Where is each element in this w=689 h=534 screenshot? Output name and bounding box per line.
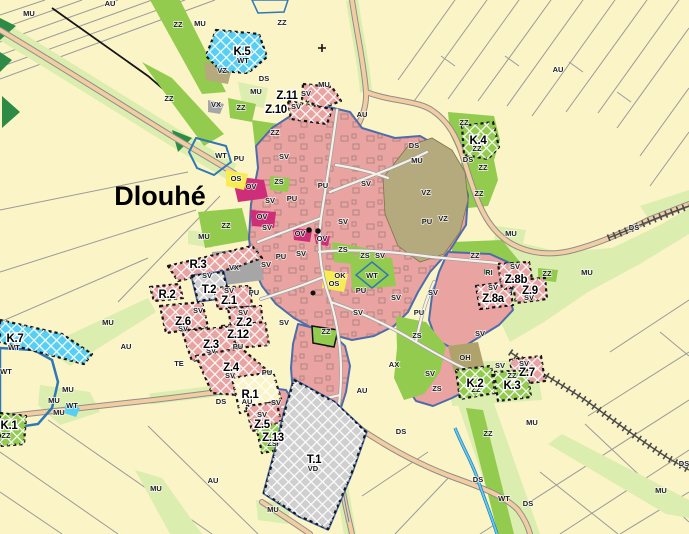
area-code-PU: PU [287,194,297,203]
area-code-PU: PU [233,342,243,351]
area-code-OV: OV [295,229,306,238]
area-code-OH: OH [459,353,470,362]
area-code-ZZ: ZZ [459,118,469,127]
zone-label-K.3: K.3 [504,380,521,392]
area-code-ZZ: ZZ [321,327,331,336]
church-dot-icon [316,229,321,234]
area-code-AU: AU [357,110,368,119]
area-code-TE: TE [174,359,184,368]
area-code-SV: SV [301,89,311,98]
church-dot-icon [307,228,312,233]
area-code-MU: MU [53,408,65,417]
area-code-SV: SV [353,308,363,317]
area-code-DS: DS [473,475,483,484]
zoning-map-viewport[interactable]: Dlouhé AUAUAUAUAUAUAUAXMUMUMUMUMUMUMUMUM… [0,0,689,534]
area-code-SV: SV [202,271,212,280]
area-code-AU: AU [553,65,564,74]
area-code-ZS: ZS [432,384,442,393]
area-code-DS: DS [629,223,639,232]
area-code-ZZ: ZZ [173,20,183,29]
area-code-MU: MU [581,268,593,277]
zone-label-Z.6: Z.6 [175,316,191,328]
area-code-SV: SV [425,369,435,378]
area-code-AU: AU [208,476,219,485]
area-code-SV: SV [428,288,438,297]
area-code-MU: MU [267,505,279,514]
area-code-SV: SV [279,152,289,161]
area-code-SV: SV [262,223,272,232]
area-code-ZS: ZS [338,245,348,254]
zone-label-Z.12: Z.12 [227,329,249,341]
area-code-WT: WT [66,401,78,410]
area-code-OS: OS [329,279,340,288]
area-code-MU: MU [194,19,206,28]
area-code-OK: OK [334,271,346,280]
area-code-PU: PU [249,288,259,297]
area-code-ZZ: ZZ [221,221,231,230]
zone-label-Z.2: Z.2 [236,317,252,329]
area-code-SV: SV [265,196,275,205]
area-code-AU: AU [105,0,116,8]
zone-label-K.5: K.5 [234,46,252,58]
area-code-VZ: VZ [217,66,227,75]
area-code-PU: PU [422,217,432,226]
area-code-SV: SV [261,260,271,269]
zone-label-K.7: K.7 [7,333,24,345]
area-code-ZZ: ZZ [470,251,480,260]
zone-label-Z.1: Z.1 [221,295,238,307]
chapel-dot-icon [311,291,315,295]
area-code-DS: DS [679,459,689,468]
area-code-AU: AU [121,342,132,351]
area-code-PU: PU [276,252,286,261]
area-code-ZZ: ZZ [236,103,246,112]
zone-label-R.1: R.1 [242,389,260,401]
area-code-MU: MU [198,232,210,241]
area-code-MU: MU [526,418,538,427]
zoning-map: Dlouhé AUAUAUAUAUAUAUAXMUMUMUMUMUMUMUMUM… [0,0,689,534]
area-code-WT: WT [215,151,227,160]
zone-label-Z.13: Z.13 [262,432,284,444]
zone-label-T.2: T.2 [202,284,216,296]
area-code-SV: SV [257,410,267,419]
zone-label-Z.5: Z.5 [254,419,271,431]
area-code-DS: DS [523,499,533,508]
area-code-SV: SV [271,398,281,407]
area-code-SV: SV [361,179,371,188]
area-code-MU: MU [102,318,114,327]
area-code-ZZ: ZZ [1,431,11,440]
area-code-VZ: VZ [421,188,431,197]
area-code-MU: MU [505,229,517,238]
zone-label-Z.7: Z.7 [519,367,535,379]
area-code-MU: MU [150,484,162,493]
zone-label-R.2: R.2 [159,289,176,301]
area-code-SV: SV [488,283,498,292]
area-code-ZZ: ZZ [507,371,517,380]
zone-label-Z.11: Z.11 [276,90,298,102]
zone-label-Z.10: Z.10 [265,104,287,116]
zone-label-Z.9: Z.9 [522,285,538,297]
area-code-OV: OV [257,212,268,221]
area-code-SV: SV [510,262,520,271]
zone-label-Z.4: Z.4 [223,362,240,374]
area-code-DS: DS [396,427,406,436]
area-code-MU: MU [250,87,262,96]
area-code-DS: DS [409,141,419,150]
zone-label-K.2: K.2 [467,378,484,390]
area-code-ZZ: ZZ [277,18,287,27]
area-code-SV: SV [238,308,248,317]
area-code-MU: MU [48,396,60,405]
area-code-PU: PU [414,308,424,317]
area-code-SV: SV [296,249,306,258]
area-code-WT: WT [0,367,12,376]
area-code-SV: SV [495,361,505,370]
area-code-OV: OV [317,234,328,243]
area-code-SV: SV [338,217,348,226]
area-code-MU: MU [655,486,667,495]
area-code-ZZ: ZZ [474,189,484,198]
area-code-SV: SV [193,306,203,315]
area-code-ZZ: ZZ [164,94,174,103]
area-code-MU: MU [62,385,74,394]
area-code-ZZ: ZZ [478,163,488,172]
area-code-SV: SV [279,318,289,327]
area-code-SV: SV [375,251,385,260]
area-code-RI: RI [485,268,493,277]
area-code-SV: SV [291,102,301,111]
area-code-MU: MU [23,9,35,18]
zone-label-R.3: R.3 [190,259,207,271]
area-code-VZ: VZ [438,214,448,223]
area-code-ZS: ZS [412,331,422,340]
area-code-AX: AX [389,360,399,369]
area-code-DS: DS [463,155,473,164]
area-code-ZS: ZS [274,177,284,186]
area-code-AU: AU [357,386,368,395]
area-code-SV: SV [475,329,485,338]
area-code-DS: DS [216,397,226,406]
zone-label-K.1: K.1 [1,420,19,432]
area-code-DS: DS [259,74,269,83]
area-code-PU: PU [234,154,244,163]
area-code-ZZ: ZZ [542,269,552,278]
area-code-MU: MU [318,80,330,89]
area-code-OS: OS [231,174,242,183]
area-code-ZZ: ZZ [483,429,493,438]
town-name-label: Dlouhé [114,181,206,211]
zone-label-Z.8a: Z.8a [482,293,505,305]
area-code-OV: OV [246,182,257,191]
area-code-PU: PU [262,368,272,377]
area-code-SV: SV [224,286,234,295]
area-code-MU: MU [411,156,423,165]
zone-label-K.4: K.4 [470,135,488,147]
area-code-WT: WT [498,494,510,503]
zone-label-T.1: T.1 [307,454,322,466]
area-code-ZS: ZS [360,251,370,260]
zone-label-Z.3: Z.3 [203,339,219,351]
area-code-ZZ: ZZ [270,128,280,137]
area-code-VX: VX [229,263,239,272]
area-code-PU: PU [318,181,328,190]
area-code-SV: SV [391,293,401,302]
area-code-PU: PU [356,286,366,295]
area-code-WT: WT [366,271,378,280]
area-code-VX: VX [211,100,221,109]
